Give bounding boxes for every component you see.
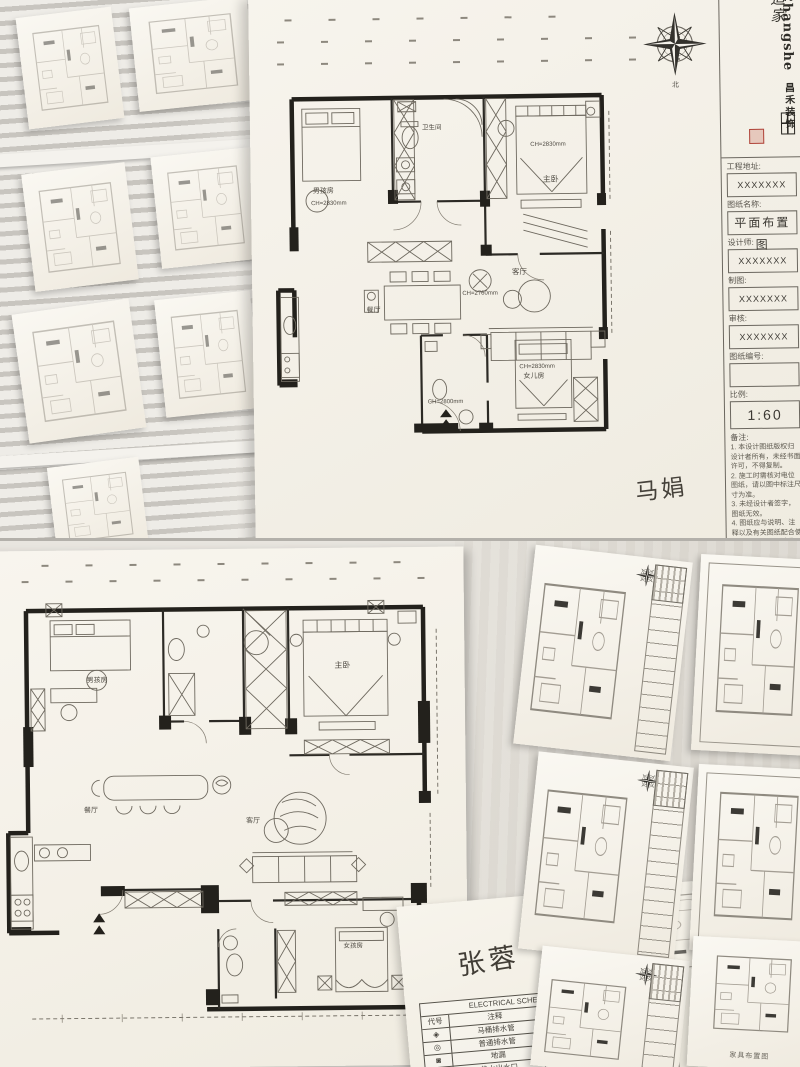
note-line: 1. 本设计图纸版权归设计者所有，未经书面许可，不得复制。 <box>730 442 800 471</box>
field-project-address: 工程地址: XXXXXXX <box>727 160 797 197</box>
room-label-bath: 卫生间 <box>422 122 442 131</box>
legend-symbol: ◙ <box>425 1054 454 1067</box>
field-label: 工程地址: <box>727 160 797 173</box>
field-drawing-name: 图纸名称: 平面布置图 <box>727 198 797 235</box>
mini-floor-plan <box>160 158 251 258</box>
field-value: XXXXXXX <box>728 286 798 311</box>
field-value: XXXXXXX <box>728 248 798 273</box>
mini-floor-plan <box>522 571 634 731</box>
mini-floor-plan <box>527 778 636 935</box>
mini-floor-plan <box>706 949 798 1039</box>
pinned-sheet <box>12 298 147 443</box>
dimension-ticks <box>41 561 411 566</box>
pinned-sheet: 家具布置图 <box>687 936 800 1067</box>
mini-floor-plan <box>706 781 800 932</box>
floor-plan-top-svg: 男孩房 CH=2830mm 卫生间 主卧 CH=2830mm 餐厅 CH=276… <box>269 81 619 451</box>
mini-floor-plan <box>32 174 128 280</box>
room-label-girls: 女孩房 <box>343 941 363 950</box>
mini-floor-plan <box>140 7 245 102</box>
room-label-dining: 餐厅 <box>84 805 98 814</box>
dim-label: CH=2800mm <box>428 399 464 405</box>
title-strip-brand <box>651 564 687 603</box>
room-label-master: 主卧 <box>543 174 559 184</box>
calligraphy-3: 造生活 <box>723 0 748 151</box>
dim-label: CH=2830mm <box>530 142 566 148</box>
dimension-ticks <box>277 36 697 43</box>
notes-block: 备注: 1. 本设计图纸版权归设计者所有，未经书面许可，不得复制。 2. 施工时… <box>730 431 800 541</box>
pinned-sheet <box>513 545 693 762</box>
photo-top: 北 <box>0 0 800 541</box>
photo-bottom: 男孩房 主卧 餐厅 客厅 女孩房 张蓉 ELECTRICAL SCHEDULE … <box>0 541 800 1067</box>
mini-floor-plan <box>708 573 800 728</box>
room-label-living: 客厅 <box>512 266 528 276</box>
room-label-boys: 男孩房 <box>313 186 334 195</box>
dimension-ticks <box>277 58 697 65</box>
dimension-ticks <box>22 577 442 583</box>
photo-collage: 北 <box>0 0 800 1067</box>
mini-floor-plan <box>537 972 634 1067</box>
pinned-sheet <box>150 147 261 269</box>
compass-rose <box>640 10 709 79</box>
title-block: Changshe 昌禾装饰 造家 造梦 造生活 工程地址: XXXXXXX <box>718 0 800 541</box>
mini-floor-plan <box>25 18 114 119</box>
room-label-master: 主卧 <box>334 660 350 670</box>
sheet-caption: 家具布置图 <box>687 1048 800 1064</box>
brand-logo-mark <box>781 112 795 134</box>
field-drawing-number: 图纸编号: <box>729 350 799 387</box>
title-strip-brand <box>653 770 689 809</box>
mini-floor-plan <box>24 311 135 430</box>
room-label-boys: 男孩房 <box>87 675 108 684</box>
title-strip-brand <box>649 963 685 1002</box>
pinned-sheet <box>154 290 262 417</box>
field-value: 1:60 <box>730 400 800 429</box>
designer-signature-bottom: 张蓉 <box>455 935 522 983</box>
pinned-sheet <box>518 751 694 964</box>
note-line: 3. 未经设计者签字，图纸无效。 <box>731 499 800 519</box>
compass-north-label: 北 <box>641 80 709 91</box>
field-reviewer: 审核: XXXXXXX <box>729 312 799 349</box>
field-value: XXXXXXX <box>727 172 797 197</box>
field-scale: 比例: 1:60 <box>730 388 800 429</box>
field-value <box>729 362 799 387</box>
mini-floor-plan <box>56 466 140 541</box>
field-label: 图纸名称: <box>727 198 797 211</box>
field-label: 制图: <box>728 274 798 287</box>
pinned-sheet <box>16 7 125 130</box>
field-value: XXXXXXX <box>729 324 799 349</box>
pinned-sheet <box>21 162 139 292</box>
field-label: 审核: <box>729 312 799 325</box>
mini-floor-plan <box>164 302 252 406</box>
pinned-sheet <box>47 457 149 541</box>
floor-plan-bottom: 男孩房 主卧 餐厅 客厅 女孩房 <box>0 589 452 1034</box>
pinned-sheet <box>530 946 690 1067</box>
floor-plan-bottom-svg: 男孩房 主卧 餐厅 客厅 女孩房 <box>0 589 452 1034</box>
designer-signature-top: 马娟 <box>633 467 689 507</box>
floor-plan-top: 男孩房 CH=2830mm 卫生间 主卧 CH=2830mm 餐厅 CH=276… <box>269 81 619 451</box>
room-label-living: 客厅 <box>246 816 260 825</box>
dim-label: CH=2760mm <box>462 290 498 296</box>
field-label: 图纸编号: <box>729 350 799 363</box>
field-drafter: 制图: XXXXXXX <box>728 274 798 311</box>
dim-label: CH=2830mm <box>311 201 347 207</box>
field-label: 比例: <box>730 388 800 401</box>
room-label-dining: 餐厅 <box>366 305 380 314</box>
floor-plan-sheet-bottom: 男孩房 主卧 餐厅 客厅 女孩房 <box>0 546 469 1067</box>
pinned-sheet <box>691 554 800 756</box>
pinned-sheet <box>689 764 800 956</box>
dim-label: CH=2830mm <box>519 364 555 370</box>
pinned-sheet <box>129 0 257 112</box>
title-block-fields: 工程地址: XXXXXXX 图纸名称: 平面布置图 设计师: XXXXXXX 制… <box>721 158 800 541</box>
red-seal <box>749 129 764 144</box>
room-label-girls: 女儿房 <box>523 371 544 380</box>
floor-plan-sheet-top: 北 <box>248 0 800 541</box>
dimension-ticks <box>284 16 564 21</box>
note-line: 2. 施工时需核对电位图纸，请以图中标注尺寸为准。 <box>731 471 800 500</box>
brand-zone: Changshe 昌禾装饰 造家 造梦 造生活 <box>719 0 800 158</box>
field-value: 平面布置图 <box>727 210 797 235</box>
note-line: 4. 图纸应与说明、注释以及有关图纸配合使用，如发现问题请及时通知设计者。 <box>731 518 800 541</box>
